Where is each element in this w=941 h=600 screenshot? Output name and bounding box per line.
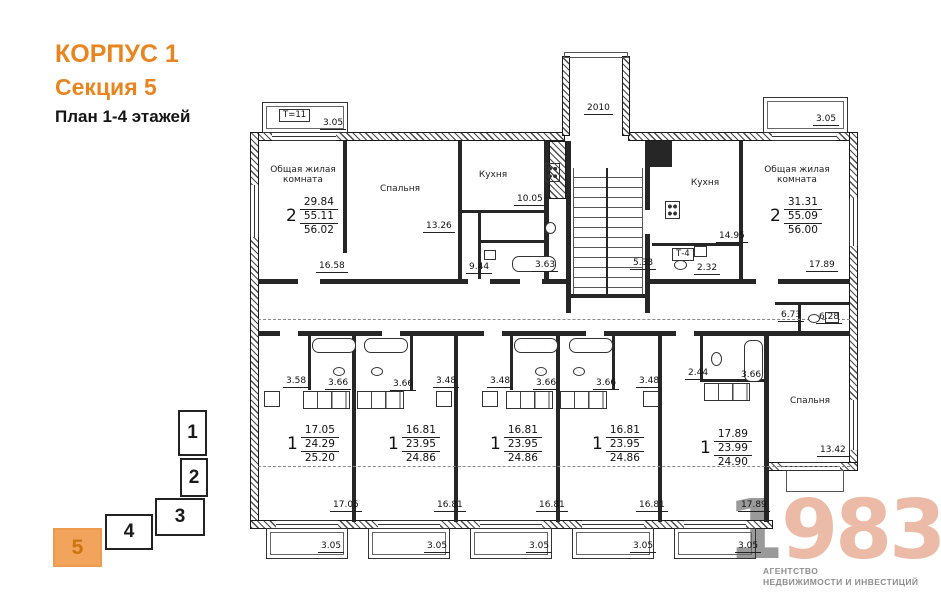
locator-section-3: 3: [155, 498, 205, 536]
locator-section-1: 1: [178, 410, 207, 456]
locator-section-4: 4: [105, 514, 153, 550]
floorplan-page: КОРПУС 1 Секция 5 План 1-4 этажей 1983 А…: [0, 0, 941, 600]
locator-section-5: 5: [53, 528, 102, 567]
section-locator: 12345: [0, 0, 941, 600]
locator-section-2: 2: [180, 458, 208, 497]
